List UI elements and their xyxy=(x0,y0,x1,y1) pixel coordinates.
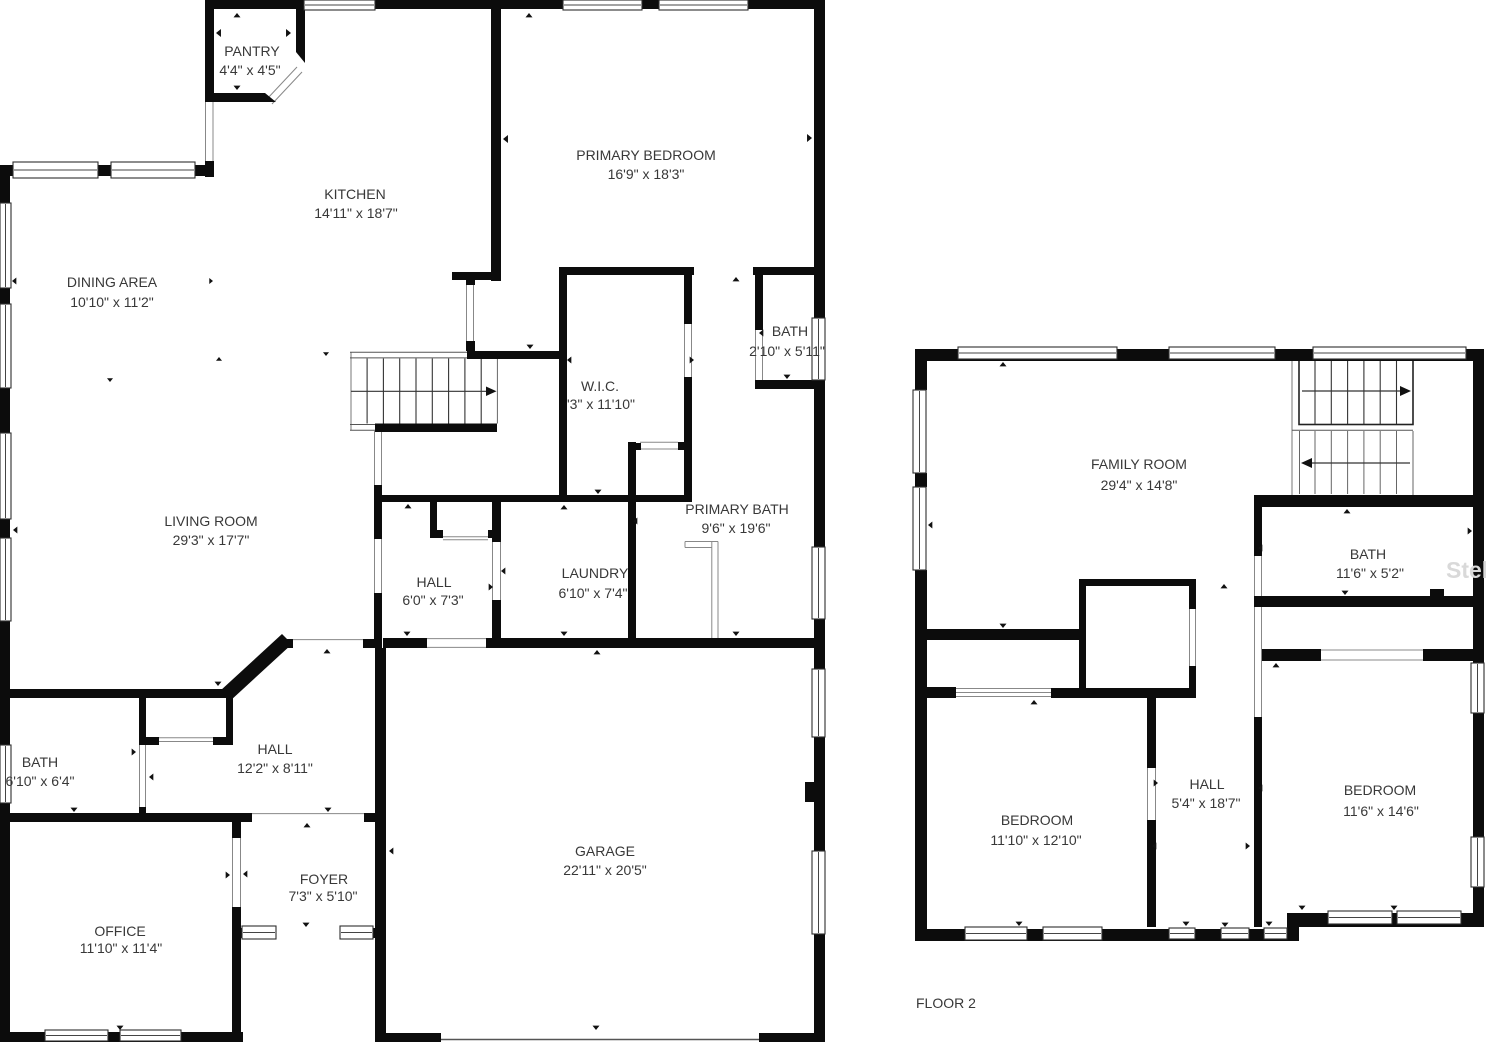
svg-text:29'3" x 17'7": 29'3" x 17'7" xyxy=(173,532,250,548)
svg-text:HALL: HALL xyxy=(416,574,451,590)
svg-text:BEDROOM: BEDROOM xyxy=(1344,782,1416,798)
svg-text:7'3" x 5'10": 7'3" x 5'10" xyxy=(289,888,358,904)
svg-text:11'6" x 5'2": 11'6" x 5'2" xyxy=(1336,565,1404,581)
svg-text:29'4" x 14'8": 29'4" x 14'8" xyxy=(1101,477,1178,493)
svg-text:GARAGE: GARAGE xyxy=(575,843,635,859)
svg-text:6'0" x 7'3": 6'0" x 7'3" xyxy=(402,592,463,608)
svg-text:Stellar: Stellar xyxy=(1446,557,1486,583)
svg-text:OFFICE: OFFICE xyxy=(94,923,145,939)
svg-text:9'6" x 19'6": 9'6" x 19'6" xyxy=(702,520,771,536)
svg-text:12'2" x 8'11": 12'2" x 8'11" xyxy=(237,760,313,776)
svg-text:2'10" x 5'11": 2'10" x 5'11" xyxy=(749,343,825,359)
svg-text:22'11" x 20'5": 22'11" x 20'5" xyxy=(563,862,647,878)
svg-text:BATH: BATH xyxy=(1350,546,1386,562)
svg-text:PRIMARY BATH: PRIMARY BATH xyxy=(685,501,788,517)
svg-text:LAUNDRY: LAUNDRY xyxy=(562,565,629,581)
svg-text:6'10" x 7'4": 6'10" x 7'4" xyxy=(559,585,628,601)
svg-text:'3" x 11'10": '3" x 11'10" xyxy=(567,396,635,412)
svg-text:HALL: HALL xyxy=(1189,776,1224,792)
svg-text:4'4" x 4'5": 4'4" x 4'5" xyxy=(219,62,280,78)
svg-text:DINING AREA: DINING AREA xyxy=(67,274,158,290)
svg-text:PRIMARY BEDROOM: PRIMARY BEDROOM xyxy=(576,147,716,163)
svg-text:10'10" x 11'2": 10'10" x 11'2" xyxy=(70,294,154,310)
svg-text:FAMILY ROOM: FAMILY ROOM xyxy=(1091,456,1187,472)
svg-text:16'9" x 18'3": 16'9" x 18'3" xyxy=(608,166,685,182)
svg-text:BEDROOM: BEDROOM xyxy=(1001,812,1073,828)
svg-text:14'11" x 18'7": 14'11" x 18'7" xyxy=(314,205,398,221)
svg-text:HALL: HALL xyxy=(257,741,292,757)
svg-text:PANTRY: PANTRY xyxy=(224,43,280,59)
svg-text:W.I.C.: W.I.C. xyxy=(581,378,619,394)
svg-text:FOYER: FOYER xyxy=(300,871,348,887)
svg-text:LIVING ROOM: LIVING ROOM xyxy=(164,513,257,529)
svg-text:6'10" x 6'4": 6'10" x 6'4" xyxy=(6,773,75,789)
svg-text:BATH: BATH xyxy=(772,323,808,339)
svg-text:5'4" x 18'7": 5'4" x 18'7" xyxy=(1172,795,1241,811)
svg-text:BATH: BATH xyxy=(22,754,58,770)
svg-text:11'6" x 14'6": 11'6" x 14'6" xyxy=(1343,803,1419,819)
svg-text:KITCHEN: KITCHEN xyxy=(324,186,385,202)
svg-text:11'10" x 11'4": 11'10" x 11'4" xyxy=(80,940,163,956)
svg-text:11'10" x 12'10": 11'10" x 12'10" xyxy=(990,832,1081,848)
svg-text:FLOOR 2: FLOOR 2 xyxy=(916,995,976,1011)
